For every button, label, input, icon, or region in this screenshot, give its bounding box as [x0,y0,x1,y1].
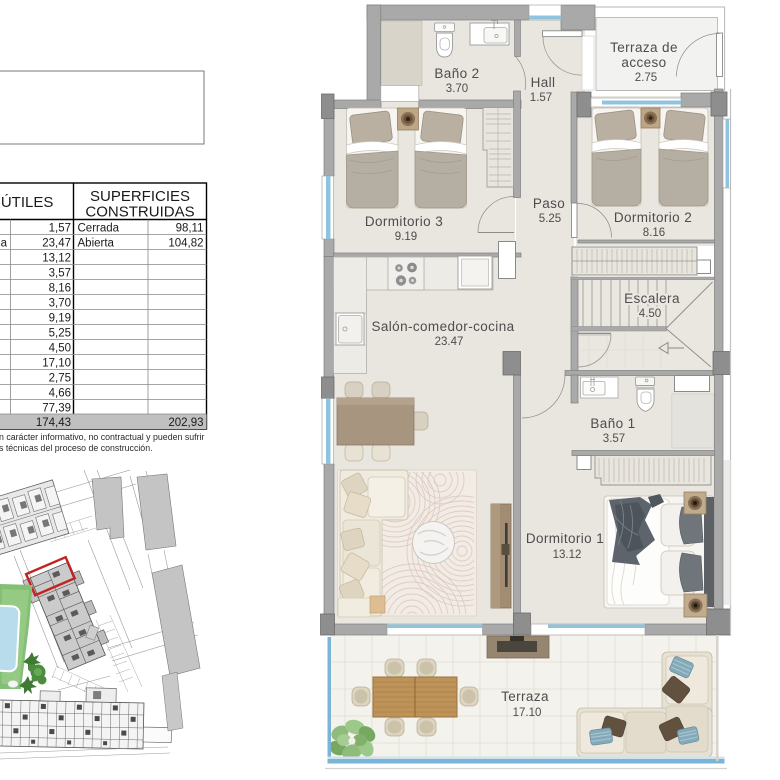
svg-text:Dormitorio 1: Dormitorio 1 [526,531,604,546]
svg-text:Escalera: Escalera [624,291,680,306]
svg-text:13.12: 13.12 [553,549,582,561]
svg-text:1,57: 1,57 [49,223,71,235]
svg-text:Dormitorio 2: Dormitorio 2 [614,210,692,225]
svg-text:98,11: 98,11 [176,223,204,235]
svg-text:na: na [0,238,8,250]
svg-text:23,47: 23,47 [42,238,71,250]
svg-text:Terraza de: Terraza de [610,40,678,55]
svg-text:104,82: 104,82 [168,238,203,250]
svg-text:2,75: 2,75 [49,373,71,385]
svg-text:Terraza: Terraza [501,689,549,704]
svg-text:5,25: 5,25 [49,328,71,340]
svg-text:3.57: 3.57 [603,433,625,445]
svg-text:acceso: acceso [621,55,666,70]
svg-text:SUPERFICIES: SUPERFICIES [90,188,190,205]
svg-text:Cerrada: Cerrada [78,223,120,235]
svg-text:Baño 2: Baño 2 [434,66,479,81]
svg-text:4,66: 4,66 [49,388,71,400]
svg-text:3,70: 3,70 [49,298,71,310]
svg-text:17,10: 17,10 [42,358,71,370]
svg-text:17.10: 17.10 [513,707,542,719]
svg-text:202,93: 202,93 [168,417,203,429]
svg-text:Abierta: Abierta [78,238,115,250]
svg-text:4,50: 4,50 [49,343,71,355]
svg-text:Baño 1: Baño 1 [590,416,635,431]
svg-text:23.47: 23.47 [435,336,464,348]
svg-text:s técnicas del proceso de cons: s técnicas del proceso de construcción. [0,443,153,453]
svg-text:9.19: 9.19 [395,231,417,243]
svg-text:8,16: 8,16 [49,283,71,295]
svg-text:2.75: 2.75 [635,72,657,84]
svg-text:n carácter informativo, no con: n carácter informativo, no contractual y… [0,432,204,442]
svg-text:Dormitorio 3: Dormitorio 3 [365,214,443,229]
svg-text:SUPERFICIES ÚTILES: SUPERFICIES ÚTILES [0,194,53,211]
svg-text:5.25: 5.25 [539,213,561,225]
svg-text:4.50: 4.50 [639,308,661,320]
svg-text:1.57: 1.57 [530,92,552,104]
svg-text:174,43: 174,43 [36,417,71,429]
svg-text:CONSTRUIDAS: CONSTRUIDAS [85,204,194,221]
svg-text:13,12: 13,12 [42,253,71,265]
svg-text:Salón-comedor-cocina: Salón-comedor-cocina [371,319,514,334]
svg-text:3.70: 3.70 [446,83,468,95]
svg-text:Hall: Hall [531,75,556,90]
svg-text:3,57: 3,57 [49,268,71,280]
svg-text:8.16: 8.16 [643,227,665,239]
svg-text:Paso: Paso [533,196,565,211]
svg-text:77,39: 77,39 [42,403,71,415]
svg-text:9,19: 9,19 [49,313,71,325]
